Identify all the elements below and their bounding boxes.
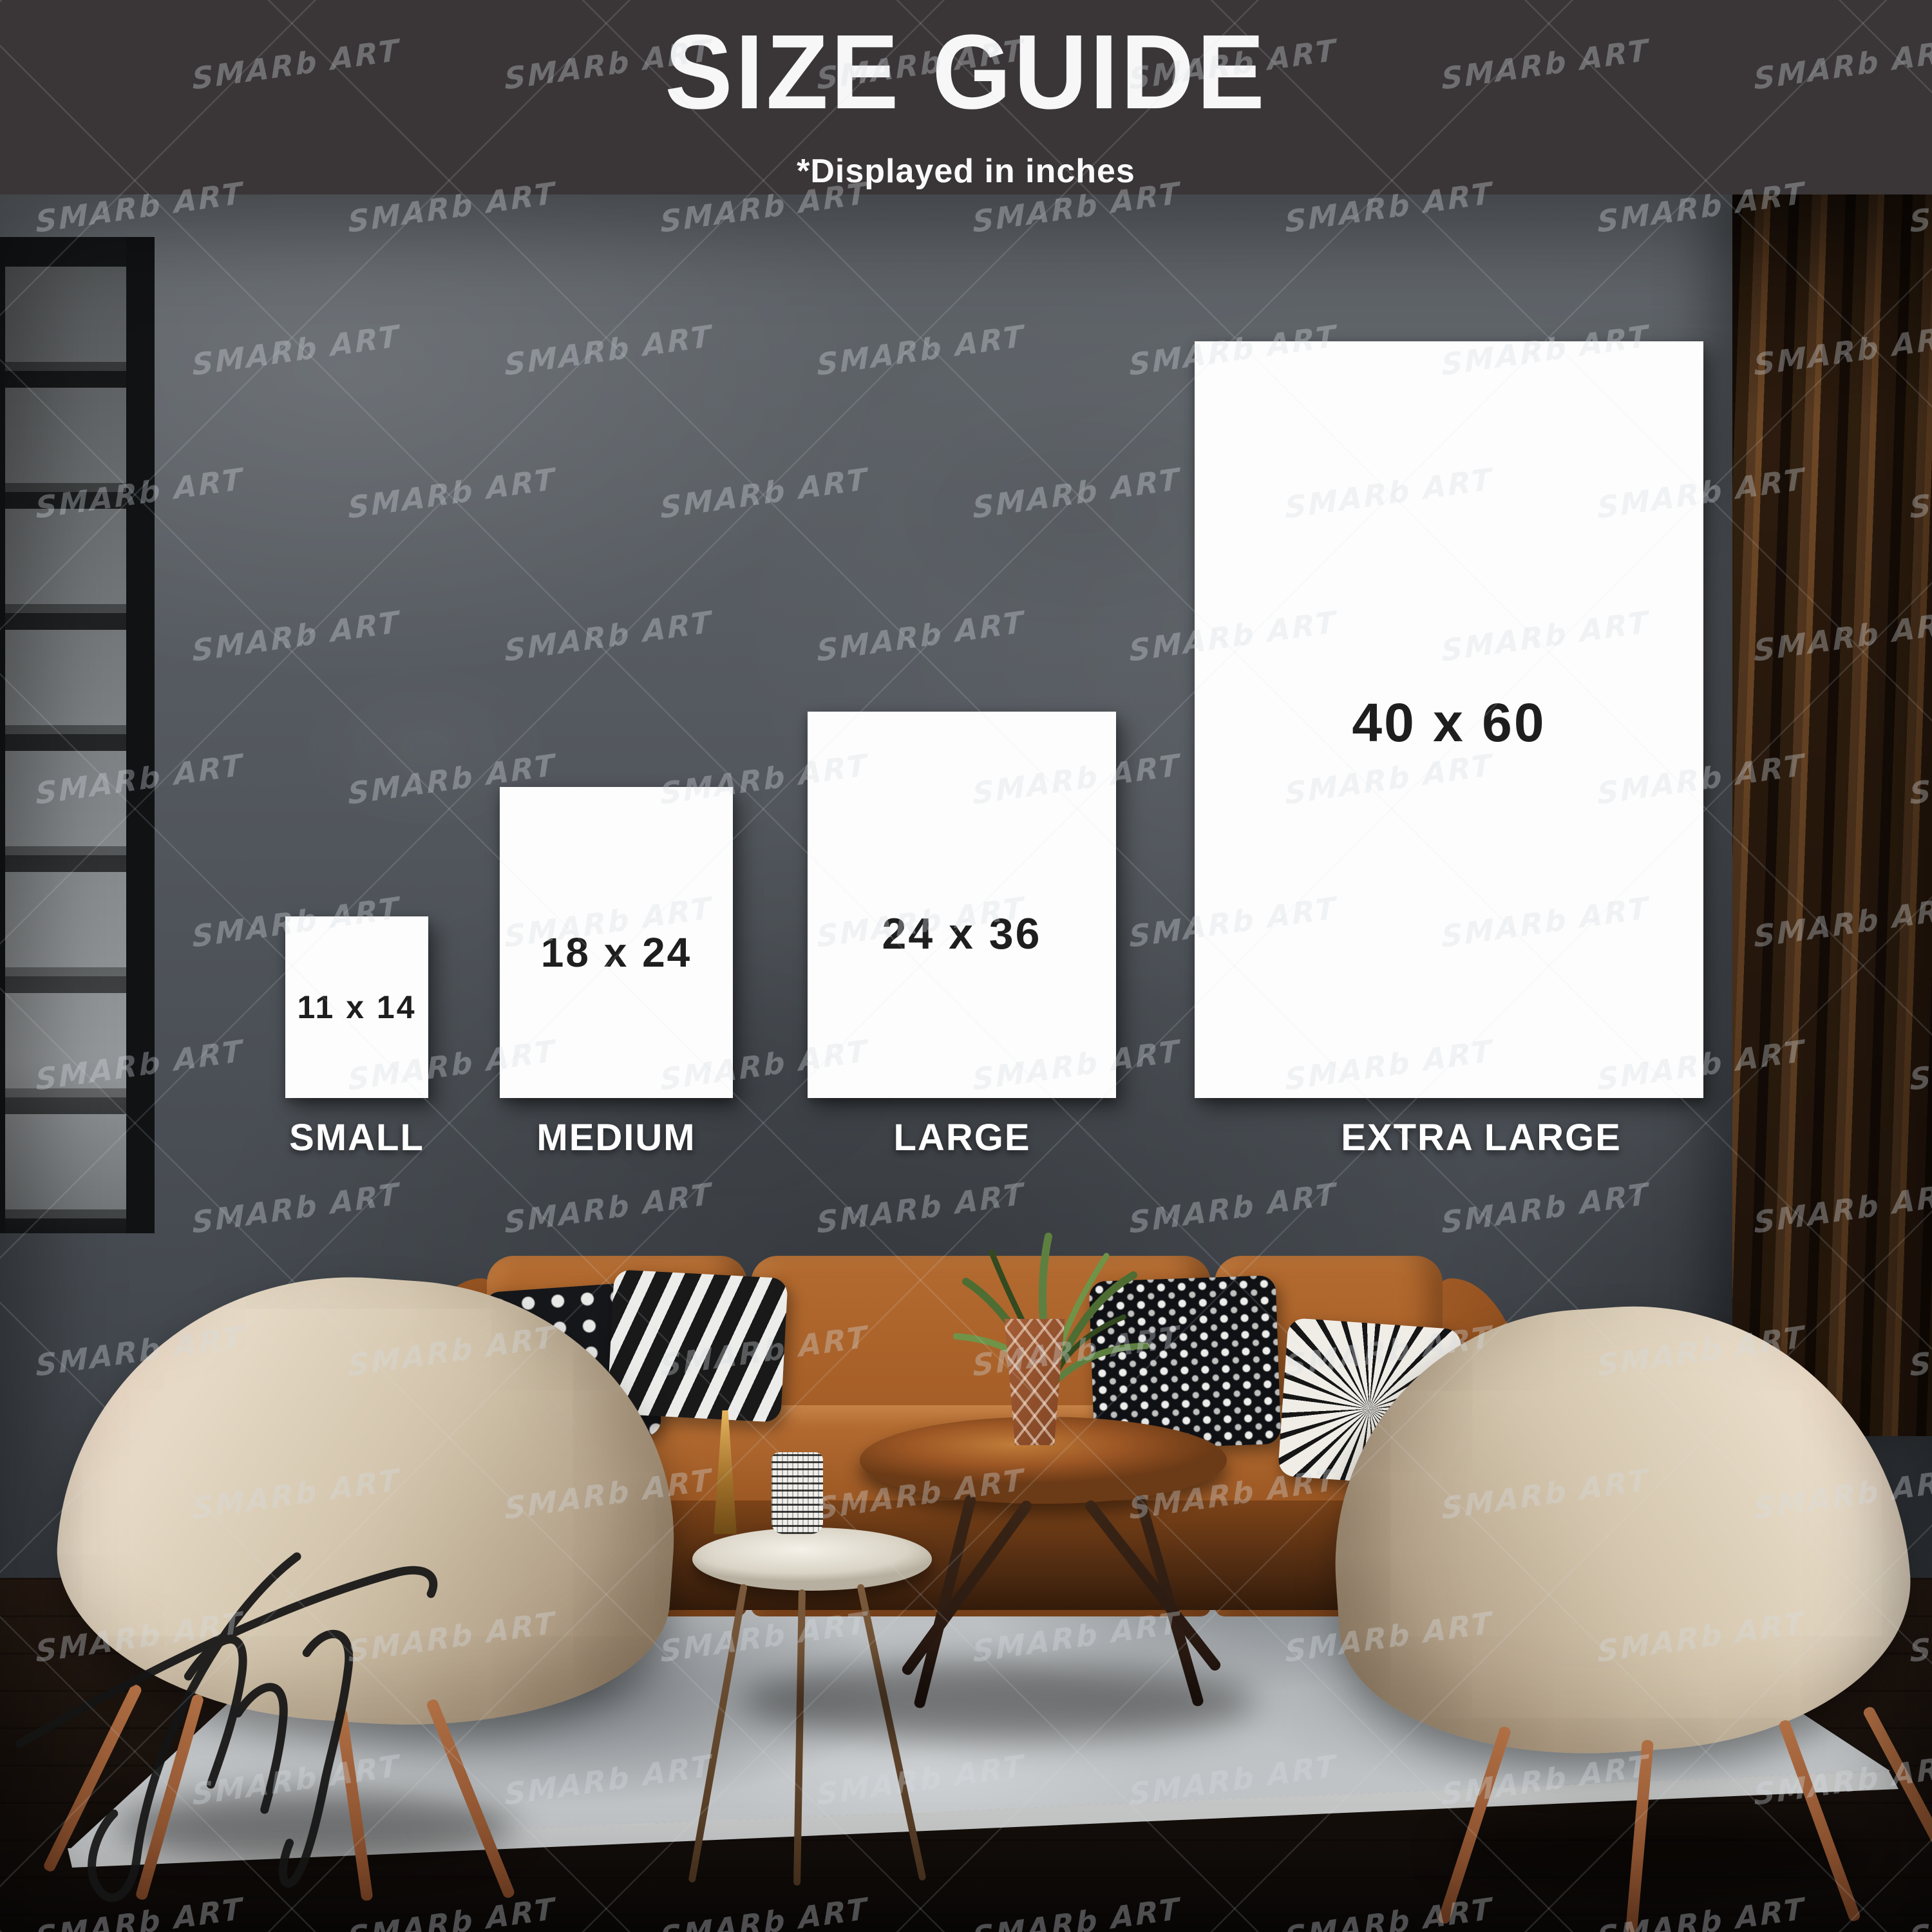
size-category-large: LARGE (894, 1116, 1031, 1159)
size-dimensions: 40 x 60 (1352, 685, 1546, 754)
header-band: SIZE GUIDE *Displayed in inches (0, 0, 1932, 194)
page-title: SIZE GUIDE (0, 12, 1932, 133)
units-note: *Displayed in inches (0, 152, 1932, 191)
size-card-large: 24 x 36 (808, 712, 1116, 1098)
size-card-extra-large: 40 x 60 (1195, 341, 1703, 1098)
size-dimensions: 11 x 14 (297, 989, 416, 1026)
size-category-small: SMALL (289, 1116, 424, 1159)
size-dimensions: 18 x 24 (541, 909, 692, 976)
size-dimensions: 24 x 36 (882, 851, 1042, 959)
size-card-small: 11 x 14 (285, 916, 428, 1098)
size-category-medium: MEDIUM (536, 1116, 696, 1159)
size-category-extra-large: EXTRA LARGE (1341, 1116, 1622, 1159)
artist-signature (0, 1515, 497, 1931)
size-guide-image: SIZE GUIDE *Displayed in inches 11 x 14 … (0, 0, 1932, 1932)
size-card-medium: 18 x 24 (500, 787, 733, 1098)
